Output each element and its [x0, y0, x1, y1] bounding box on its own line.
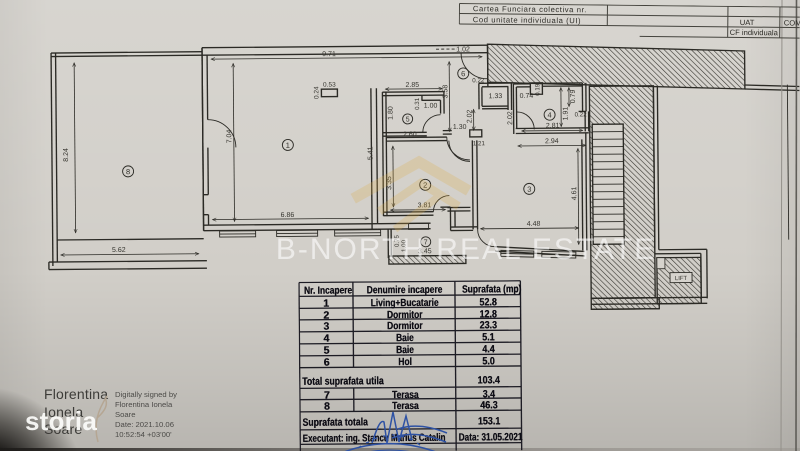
svg-text:0.31: 0.31 [414, 97, 421, 110]
svg-text:4: 4 [547, 110, 551, 119]
svg-text:LIFT: LIFT [675, 276, 688, 282]
svg-text:5: 5 [406, 117, 410, 124]
svg-text:0.79: 0.79 [570, 90, 577, 104]
svg-text:0.53: 0.53 [323, 82, 336, 89]
svg-text:3: 3 [527, 185, 531, 194]
svg-text:2.94: 2.94 [545, 138, 559, 145]
svg-text:1.02: 1.02 [456, 46, 470, 53]
svg-text:B-NORTH REAL ESTATE: B-NORTH REAL ESTATE [276, 233, 656, 266]
svg-text:0.74: 0.74 [520, 93, 534, 100]
svg-text:1: 1 [286, 141, 290, 150]
svg-text:2.02: 2.02 [467, 109, 474, 123]
svg-text:0.22: 0.22 [575, 111, 588, 118]
svg-text:6.86: 6.86 [281, 212, 295, 219]
svg-text:8.24: 8.24 [63, 148, 70, 162]
svg-text:5.62: 5.62 [112, 247, 126, 254]
svg-text:0.19: 0.19 [534, 83, 541, 96]
svg-text:3.58: 3.58 [442, 85, 449, 99]
svg-text:6: 6 [461, 69, 465, 78]
svg-text:7.04: 7.04 [226, 130, 233, 144]
svg-text:4.48: 4.48 [527, 221, 541, 228]
svg-text:1.91: 1.91 [563, 107, 570, 121]
svg-text:4.61: 4.61 [571, 187, 578, 201]
svg-text:1.00: 1.00 [424, 103, 438, 110]
svg-text:1.33: 1.33 [489, 93, 503, 100]
svg-text:8: 8 [126, 167, 130, 176]
svg-text:0.22: 0.22 [472, 77, 485, 84]
svg-text:9.71: 9.71 [322, 51, 336, 58]
svg-text:1.30: 1.30 [453, 124, 467, 131]
svg-text:2.85: 2.85 [406, 82, 420, 89]
svg-text:5.41: 5.41 [367, 146, 374, 160]
svg-text:0.24: 0.24 [313, 86, 320, 99]
svg-text:1.80: 1.80 [388, 106, 395, 120]
svg-text:2.81: 2.81 [546, 123, 560, 130]
svg-text:1.21: 1.21 [473, 140, 486, 147]
